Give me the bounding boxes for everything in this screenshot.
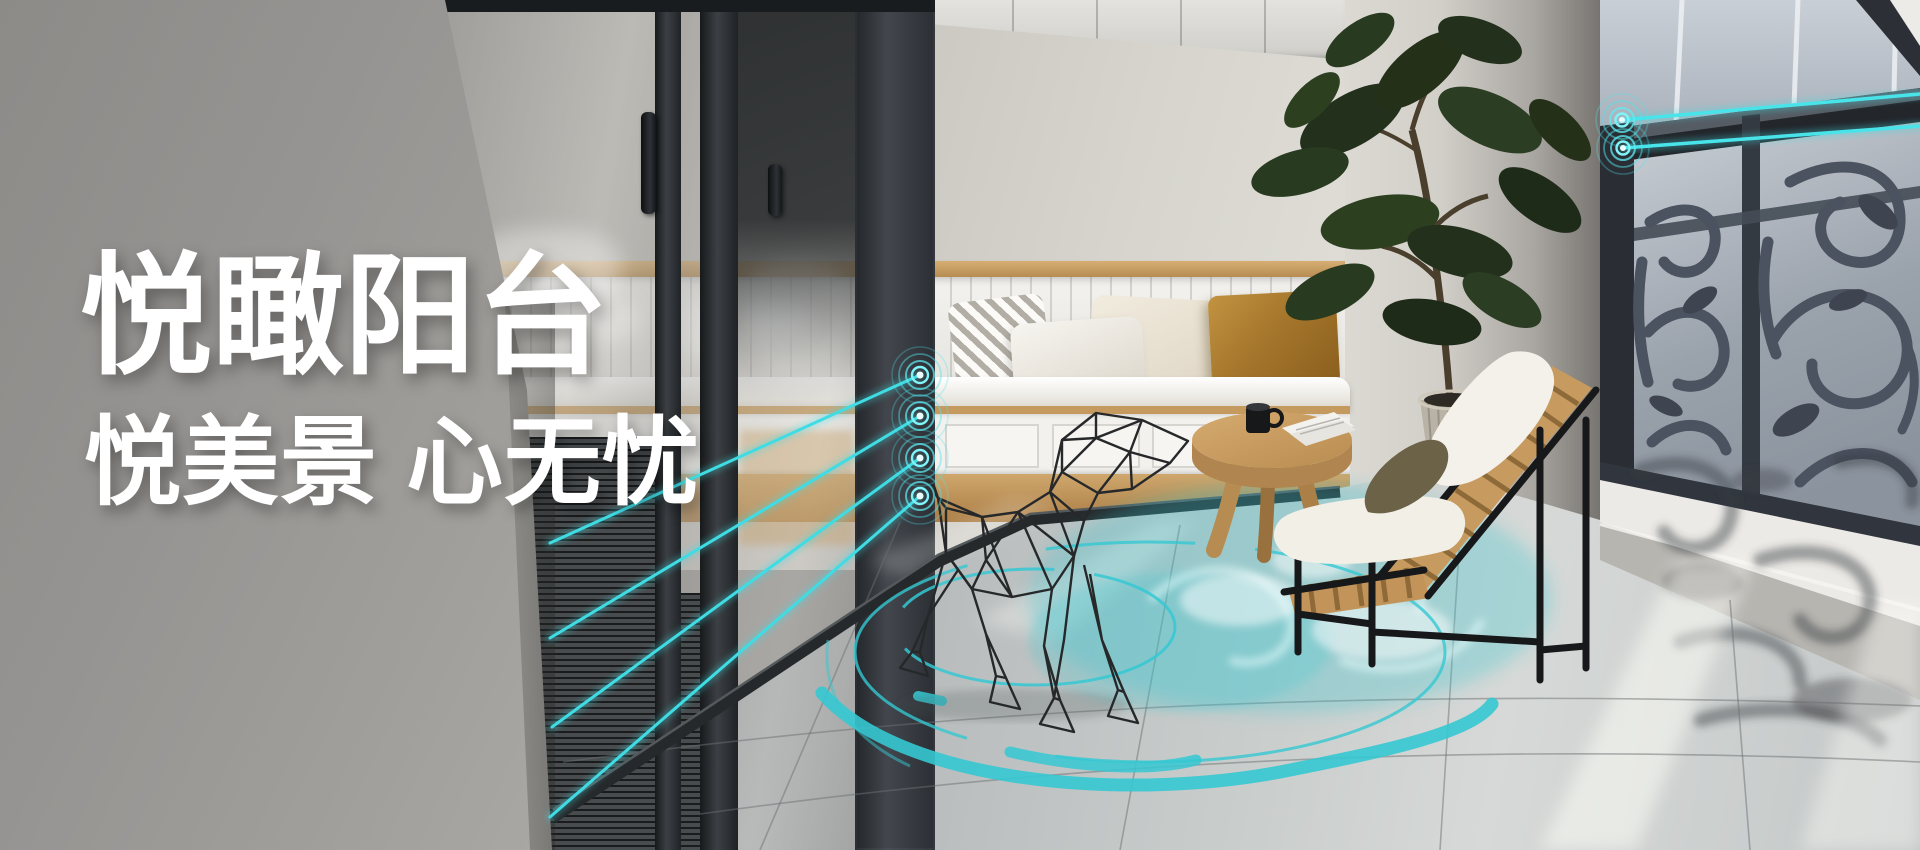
door-lead-stile xyxy=(855,0,935,850)
window-mullions xyxy=(1676,0,1896,122)
scrollwork-grille xyxy=(1639,167,1915,482)
balcony-marketing-banner: 悦瞰阳台 悦美景 心无忧 xyxy=(0,0,1920,850)
window-top-frame xyxy=(1856,0,1920,76)
door-top-rail xyxy=(440,0,935,12)
wood-floor-reflection xyxy=(740,430,854,545)
door-handle xyxy=(641,112,656,214)
door-handle xyxy=(768,164,782,216)
drawer-panel xyxy=(1252,424,1336,468)
ceiling-corner xyxy=(1830,0,1920,58)
hero-subtitle: 悦美景 心无忧 xyxy=(84,412,700,514)
door-stile xyxy=(700,0,738,850)
dark-glass-upper xyxy=(738,0,858,400)
hero-title: 悦瞰阳台 xyxy=(80,248,608,387)
drawer-panel xyxy=(945,424,1039,468)
radar-beams-window xyxy=(1596,60,1920,174)
drawer-panel xyxy=(1052,424,1140,468)
grille-leaves xyxy=(1646,188,1903,443)
drawer-panel xyxy=(1152,424,1240,468)
